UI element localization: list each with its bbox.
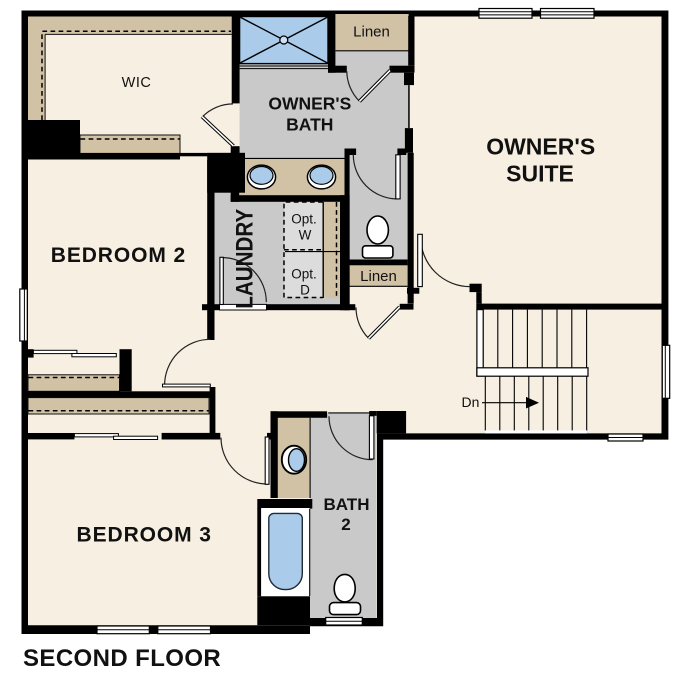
svg-text:OWNER'S: OWNER'S xyxy=(486,134,595,160)
svg-text:LAUNDRY: LAUNDRY xyxy=(231,209,258,309)
svg-text:OWNER'S: OWNER'S xyxy=(268,94,351,114)
svg-text:SECOND FLOOR: SECOND FLOOR xyxy=(23,645,221,672)
svg-text:W: W xyxy=(299,228,312,243)
svg-text:BATH: BATH xyxy=(286,115,333,135)
svg-text:BEDROOM 3: BEDROOM 3 xyxy=(77,524,212,547)
svg-text:2: 2 xyxy=(341,515,350,534)
svg-text:Linen: Linen xyxy=(360,268,397,285)
svg-text:SUITE: SUITE xyxy=(506,161,574,187)
svg-text:Linen: Linen xyxy=(353,24,390,41)
svg-text:Opt.: Opt. xyxy=(291,212,317,227)
svg-text:Dn: Dn xyxy=(462,394,480,410)
svg-text:D: D xyxy=(300,282,310,297)
svg-text:BATH: BATH xyxy=(324,495,370,514)
svg-text:WIC: WIC xyxy=(122,75,152,91)
svg-text:BEDROOM 2: BEDROOM 2 xyxy=(51,244,186,267)
svg-text:Opt.: Opt. xyxy=(291,266,317,281)
